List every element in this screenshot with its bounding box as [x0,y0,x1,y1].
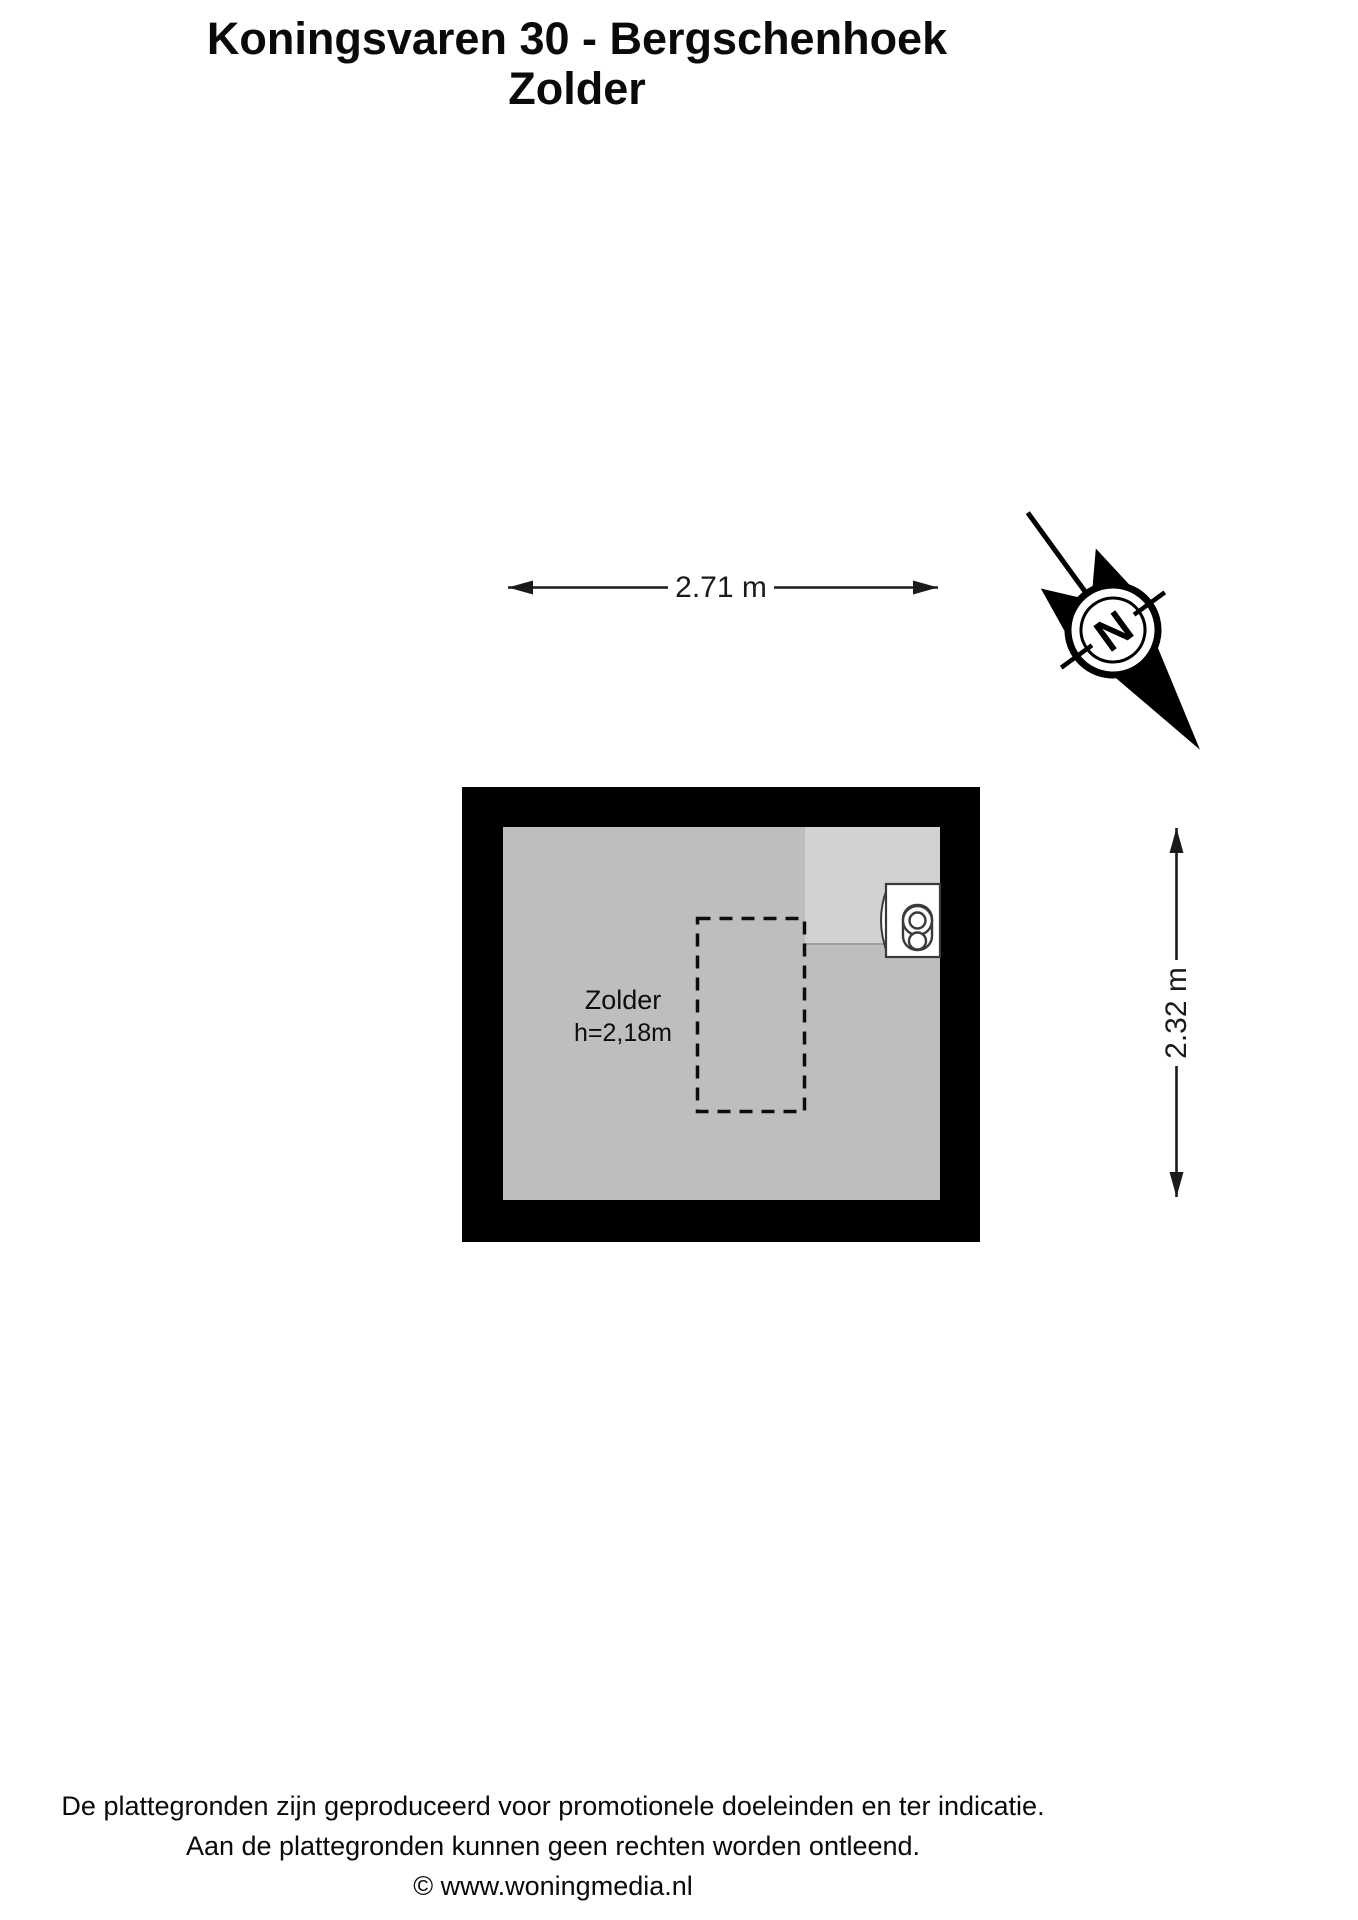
page-title: Koningsvaren 30 - Bergschenhoek Zolder [0,14,1154,114]
room-height-label: h=2,18m [498,1017,748,1049]
room-label-block: Zolder h=2,18m [498,983,748,1049]
page-title-line-2: Zolder [0,64,1154,114]
copyright-line: © www.woningmedia.nl [0,1866,1106,1906]
boiler-icon [868,876,946,964]
disclaimer-line-2: Aan de plattegronden kunnen geen rechten… [0,1826,1106,1866]
footer: De plattegronden zijn geproduceerd voor … [0,1786,1106,1906]
width-dimension-label: 2.71 m [675,571,767,605]
floorplan-page: Koningsvaren 30 - Bergschenhoek Zolder 2… [0,0,1358,1920]
height-dimension-label: 2.32 m [1160,967,1194,1059]
compass-icon: N [1000,478,1230,778]
room-name-label: Zolder [498,983,748,1017]
page-title-line-1: Koningsvaren 30 - Bergschenhoek [0,14,1154,64]
disclaimer-line-1: De plattegronden zijn geproduceerd voor … [0,1786,1106,1826]
